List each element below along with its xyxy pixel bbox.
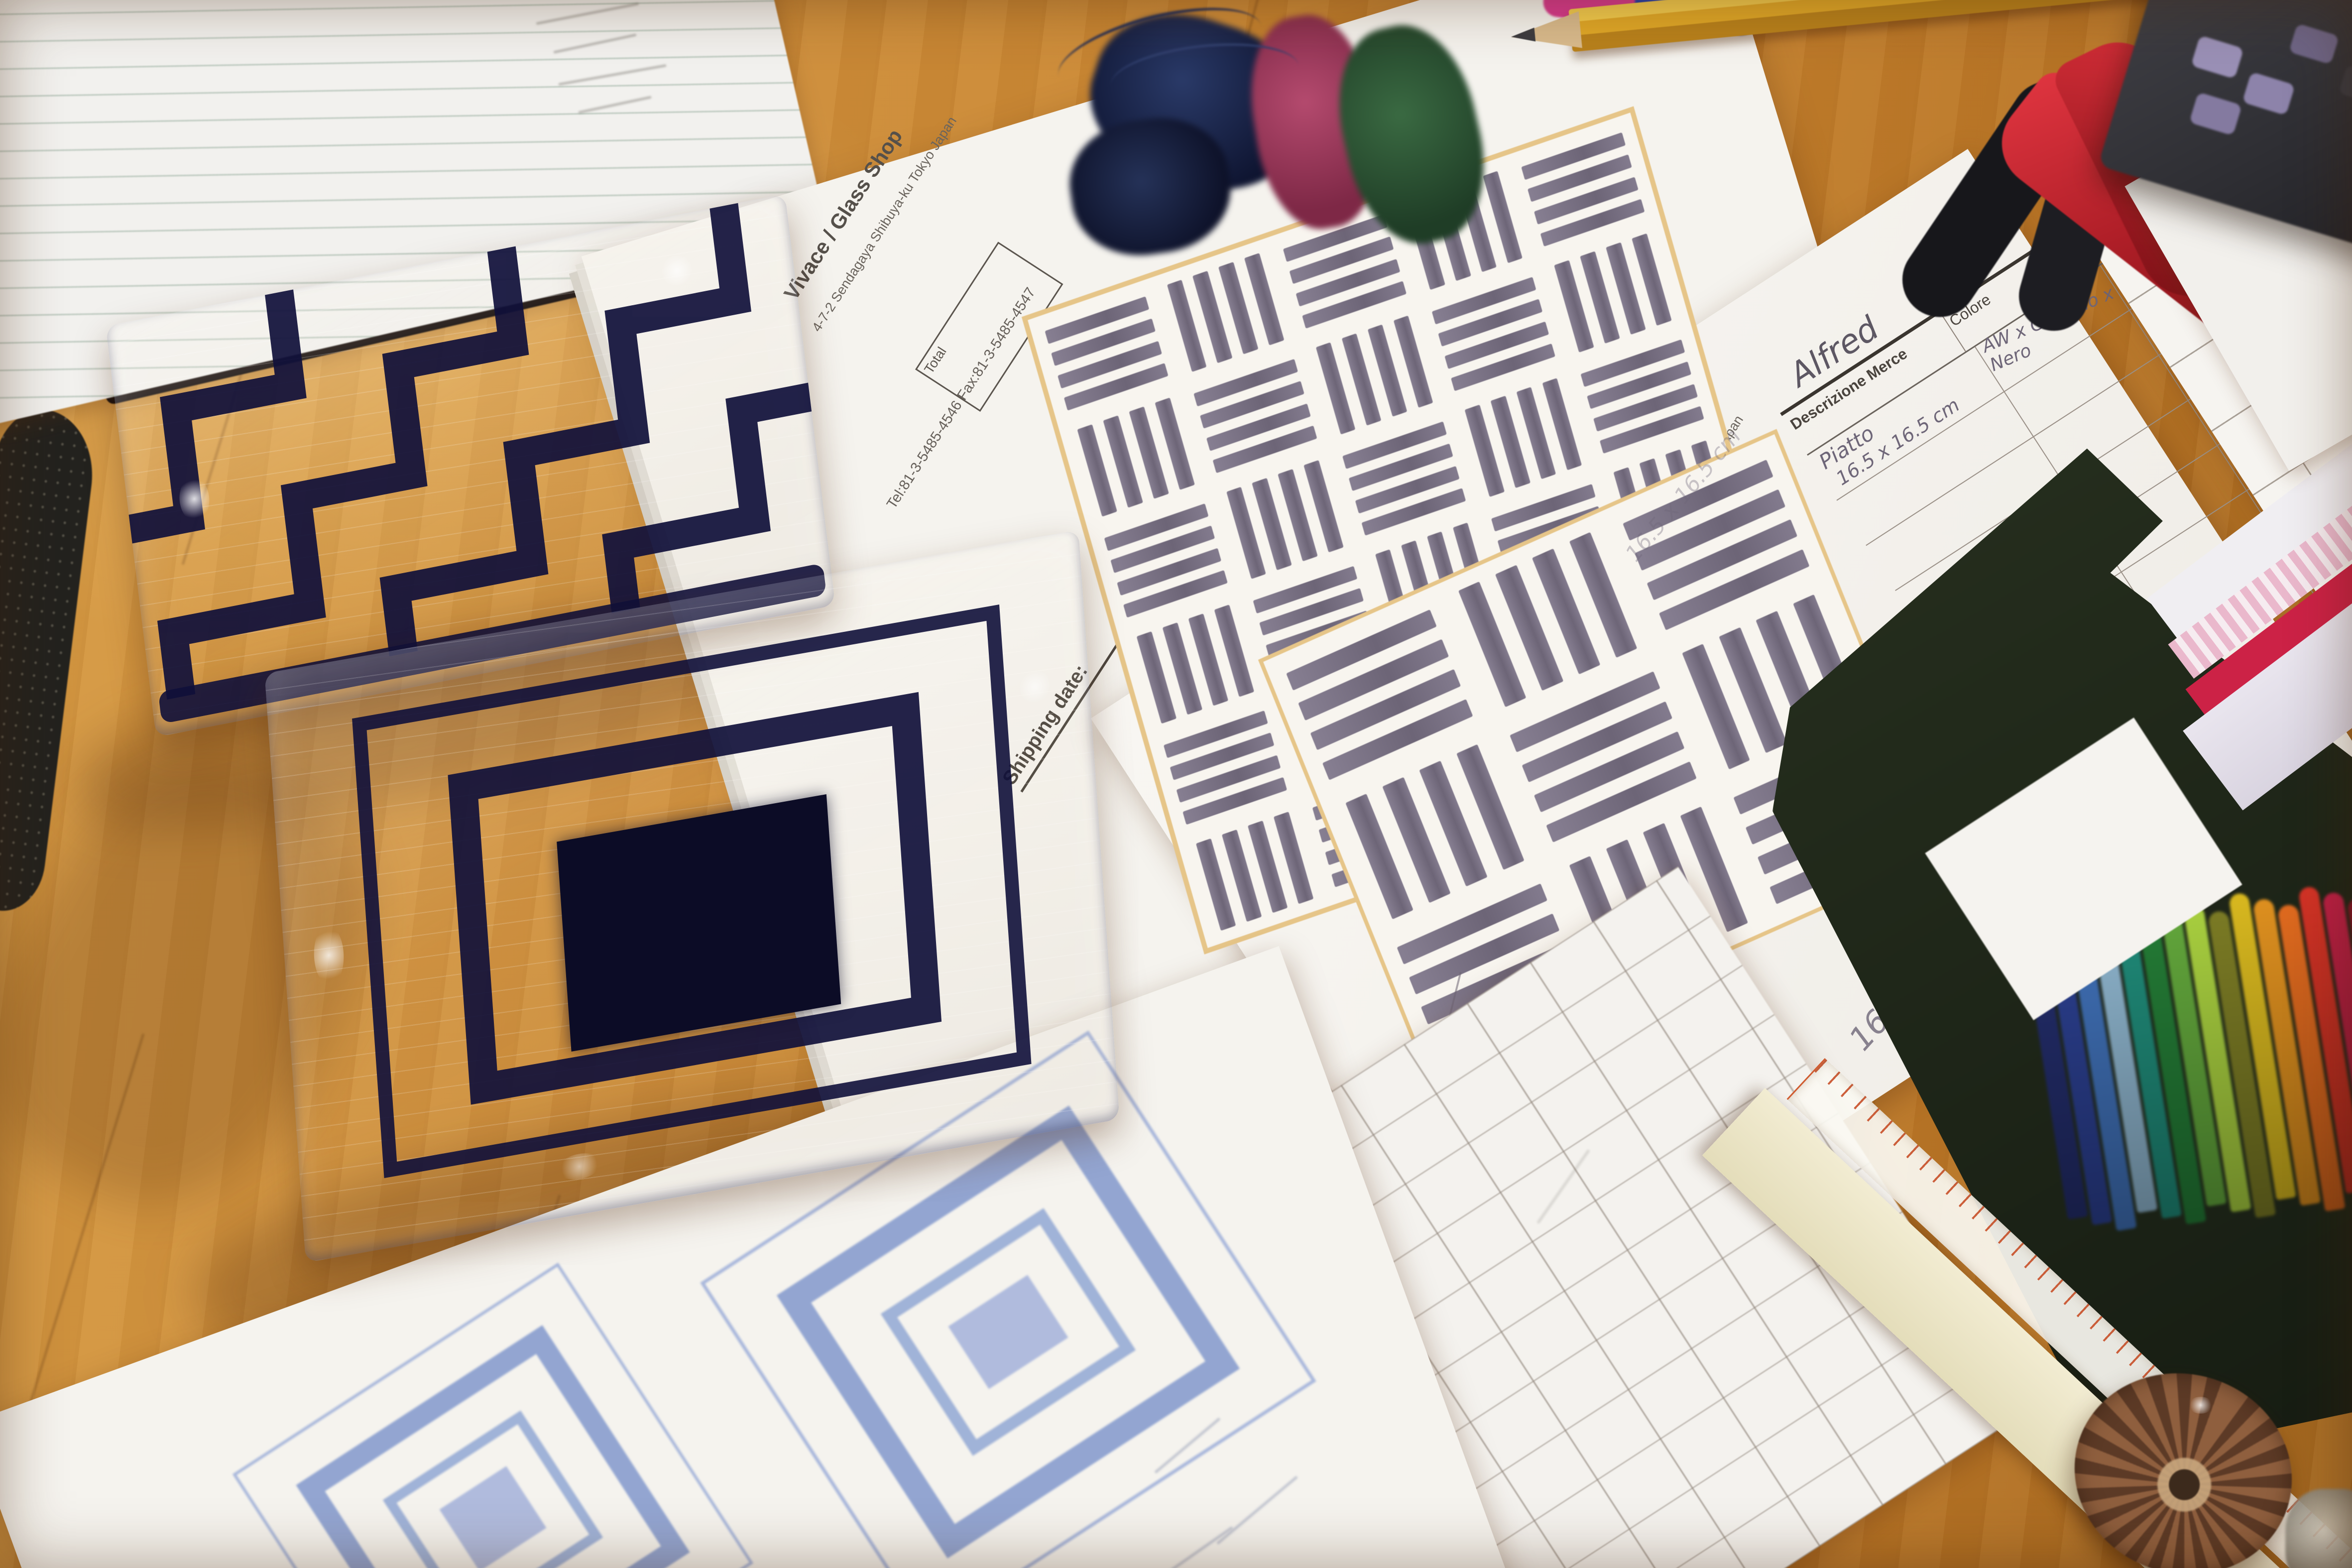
pencil-tip-wood (1509, 11, 1582, 55)
calculator-key (2289, 23, 2340, 65)
calculator-key (2189, 92, 2242, 136)
glass-glint (1019, 667, 1051, 707)
ammonite-glint (2188, 1397, 2213, 1414)
calculator-key (2191, 35, 2244, 79)
calculator-key (2339, 65, 2352, 106)
glass-glint (312, 923, 346, 988)
glass-glint (557, 1150, 602, 1183)
calculator-key (2242, 72, 2295, 116)
pencil-tip-graphite (1511, 27, 1535, 43)
desk-photo: Vivace / Glass Shop 4-7-2 Sendagaya Shib… (0, 0, 2352, 1568)
